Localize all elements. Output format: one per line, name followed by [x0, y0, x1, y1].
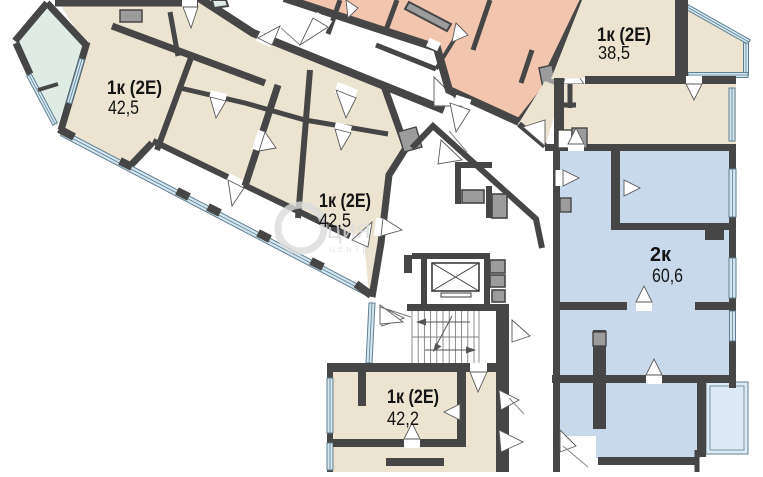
svg-text:центр: центр [329, 244, 371, 255]
svg-text:1к (2Е): 1к (2Е) [387, 387, 439, 408]
svg-text:60,6: 60,6 [652, 266, 683, 287]
svg-text:42,2: 42,2 [387, 409, 419, 430]
svg-text:38,5: 38,5 [598, 43, 630, 63]
svg-text:1к (2Е): 1к (2Е) [319, 191, 371, 212]
svg-text:2к: 2к [650, 244, 672, 266]
svg-text:1к (2Е): 1к (2Е) [107, 78, 162, 99]
svg-text:42,5: 42,5 [319, 211, 351, 232]
svg-text:42,5: 42,5 [108, 98, 139, 119]
